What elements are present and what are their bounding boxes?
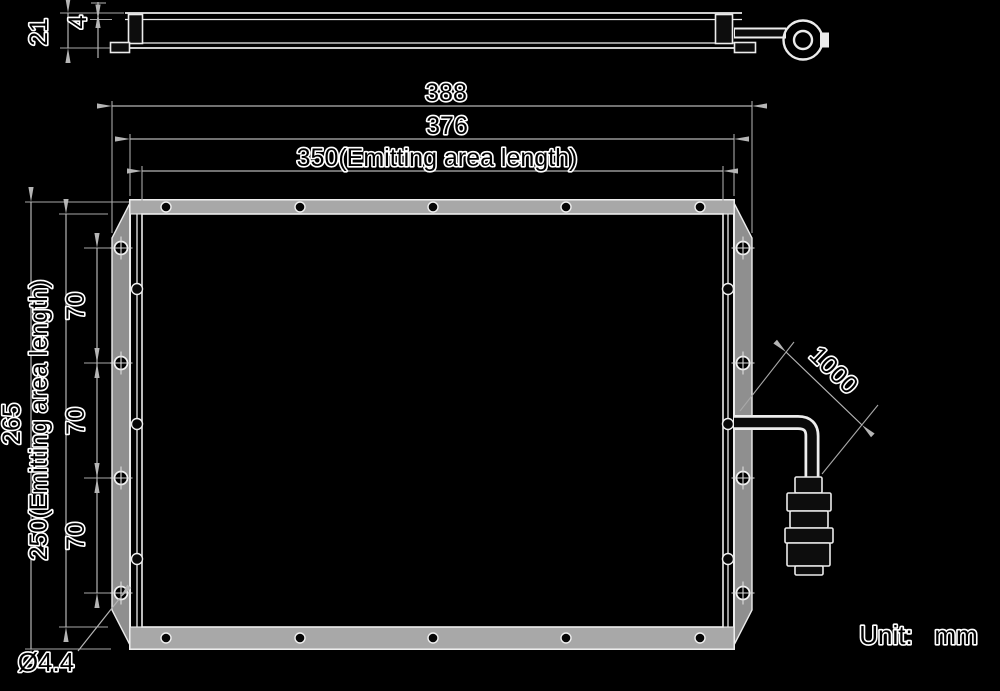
connector-end-view <box>784 21 830 60</box>
emitting-area <box>142 214 723 627</box>
unit-note-label: Unit: <box>859 620 912 650</box>
rivet-icon <box>695 633 705 643</box>
dim-overall-thickness-label: 21 <box>25 18 53 46</box>
connector-plug <box>785 477 833 575</box>
rivet-icon <box>428 633 438 643</box>
side-right-bracket <box>716 15 733 44</box>
connector-key-notch <box>820 33 829 48</box>
side-right-foot <box>735 43 756 53</box>
rivet-icon <box>161 202 171 212</box>
dim-hole-diameter-label: Ø4.4 <box>18 647 74 677</box>
rivet-icon <box>161 633 171 643</box>
rivet-icon <box>132 419 143 430</box>
rivet-icon <box>695 202 705 212</box>
rivet-icon <box>295 202 305 212</box>
dim-hole-pitch-bottom-label: 70 <box>62 522 90 550</box>
side-left-bracket <box>129 15 143 44</box>
leader-hole-diameter <box>78 598 120 651</box>
dim-hole-pitch-top-label: 70 <box>62 292 90 320</box>
unit-note-value: mm <box>934 620 977 650</box>
left-mounting-flange <box>112 203 130 645</box>
side-view-panel <box>111 13 830 60</box>
rivet-icon <box>723 284 734 295</box>
rivet-icon <box>561 633 571 643</box>
dim-frame-width-label: 376 <box>426 112 468 140</box>
side-left-foot <box>111 43 130 53</box>
dim-overall-height-label: 265 <box>0 403 26 445</box>
rivet-icon <box>132 284 143 295</box>
dim-panel-thickness-label: 4 <box>64 15 92 29</box>
rivet-icon <box>723 554 734 565</box>
technical-drawing-canvas: 388 376 350(Emitting area length) 265 25… <box>0 0 1000 691</box>
rivet-icon <box>723 419 734 430</box>
rivet-icon <box>295 633 305 643</box>
dim-overall-width-label: 388 <box>425 79 467 107</box>
dim-hole-pitch-middle-label: 70 <box>62 407 90 435</box>
dim-cable-length-label: 1000 <box>804 341 863 400</box>
dim-emitting-height-label: 250(Emitting area length) <box>25 280 53 561</box>
rivet-icon <box>132 554 143 565</box>
panel-dimension-drawing: 388 376 350(Emitting area length) 265 25… <box>0 0 1000 691</box>
front-view-panel <box>110 200 755 649</box>
rivet-icon <box>561 202 571 212</box>
dim-emitting-width-label: 350(Emitting area length) <box>297 144 578 172</box>
rivet-icon <box>428 202 438 212</box>
